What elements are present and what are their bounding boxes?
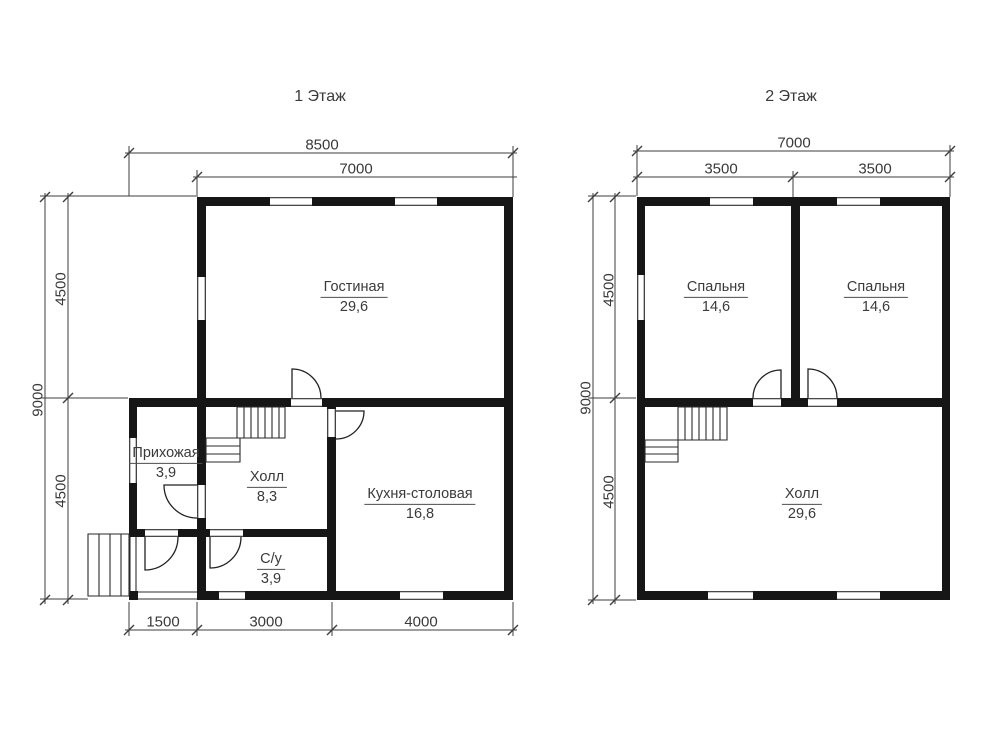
door-entry-porch [145, 537, 178, 570]
dim-f1-height-lower: 4500 [53, 474, 70, 507]
floor2-walls [637, 197, 950, 600]
room-label-bedroom-left: Спальня 14,6 [684, 278, 748, 316]
room-name: Холл [782, 485, 822, 505]
room-label-living: Гостиная 29,6 [321, 278, 388, 316]
dim-f2-width-total: 7000 [777, 135, 810, 152]
door-kitchen [336, 411, 364, 439]
dim-f2-height-upper: 4500 [601, 273, 618, 306]
floor2-stairs [645, 407, 727, 462]
door-entry [164, 485, 197, 518]
floorplan-drawing [0, 0, 1000, 750]
room-area: 14,6 [862, 298, 890, 316]
dim-f1-width-total: 8500 [305, 137, 338, 154]
room-area: 14,6 [702, 298, 730, 316]
room-name: Спальня [844, 278, 908, 298]
dim-f1-bottom-mid: 3000 [249, 614, 282, 631]
room-name: Спальня [684, 278, 748, 298]
dim-f1-bottom-right: 4000 [404, 614, 437, 631]
dim-f2-height-total: 9000 [578, 381, 595, 414]
dim-f2-width-left: 3500 [704, 161, 737, 178]
floor1-open-porch-edge [130, 537, 197, 599]
room-area: 3,9 [156, 464, 176, 482]
room-name: С/у [257, 550, 285, 570]
room-area: 8,3 [257, 488, 277, 506]
door-bedroom-right [808, 369, 837, 398]
room-area: 16,8 [406, 505, 434, 523]
room-label-hall-f2: Холл 29,6 [782, 485, 822, 523]
room-area: 29,6 [340, 298, 368, 316]
room-area: 29,6 [788, 505, 816, 523]
door-bathroom [210, 537, 241, 568]
room-label-kitchen: Кухня-столовая 16,8 [364, 485, 475, 523]
room-label-bedroom-right: Спальня 14,6 [844, 278, 908, 316]
floor1-stairs [206, 407, 285, 462]
dim-f1-bottom-porch: 1500 [146, 614, 179, 631]
floorplan-sheet: 1 Этаж 2 Этаж 8500 7000 9000 4500 4500 1… [0, 0, 1000, 750]
room-name: Кухня-столовая [364, 485, 475, 505]
floor1-title: 1 Этаж [294, 88, 346, 106]
room-label-entry: Прихожая 3,9 [129, 444, 202, 482]
room-label-hall-f1: Холл 8,3 [247, 468, 287, 506]
dim-f1-height-upper: 4500 [53, 272, 70, 305]
room-name: Прихожая [129, 444, 202, 464]
dim-f2-width-right: 3500 [858, 161, 891, 178]
floor2-title: 2 Этаж [765, 88, 817, 106]
room-area: 3,9 [261, 570, 281, 588]
door-living-room [292, 369, 321, 398]
door-bedroom-left [753, 370, 781, 398]
dim-f1-height-total: 9000 [30, 383, 47, 416]
dim-f1-width-top: 7000 [339, 161, 372, 178]
floor1-porch-steps [88, 534, 129, 596]
dim-f2-height-lower: 4500 [601, 475, 618, 508]
room-name: Гостиная [321, 278, 388, 298]
room-name: Холл [247, 468, 287, 488]
room-label-bathroom: С/у 3,9 [257, 550, 285, 588]
